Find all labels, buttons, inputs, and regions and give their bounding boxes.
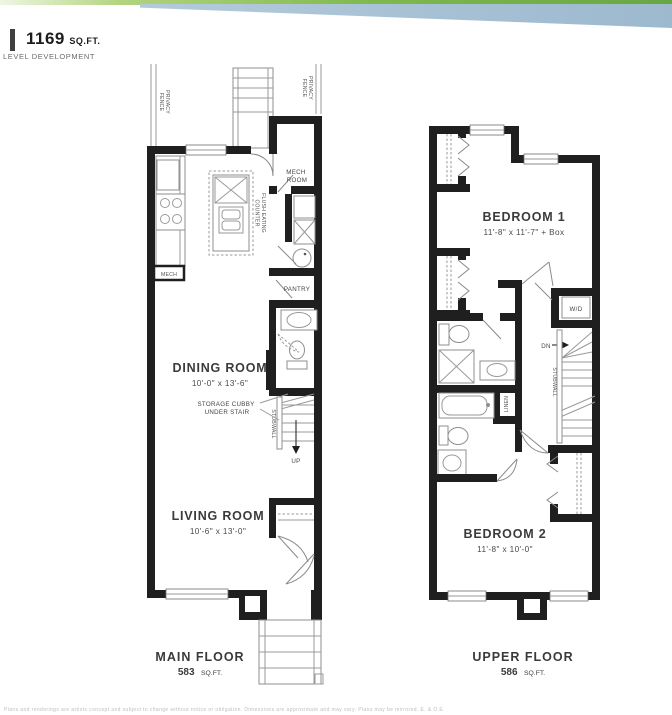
bathtub-icon bbox=[439, 393, 494, 418]
mech-box: MECH bbox=[154, 266, 184, 280]
kitchen-island bbox=[209, 171, 253, 255]
bedroom2-window-left bbox=[448, 591, 486, 601]
privacy-fence-right: PRIVACYFENCE bbox=[301, 64, 321, 114]
bedroom2-door bbox=[520, 430, 548, 453]
powder-sink-icon bbox=[278, 246, 311, 267]
upper-floor-title: UPPER FLOOR bbox=[472, 650, 573, 664]
stairs-down: DN STUBWALL bbox=[541, 330, 600, 453]
ensuite-toilet-icon bbox=[439, 324, 469, 345]
upper-porch-post bbox=[517, 592, 547, 620]
living-room-window bbox=[166, 589, 228, 599]
bedroom1-dims: 11'-8" x 11'-7" + Box bbox=[484, 228, 565, 237]
bedroom1-label: BEDROOM 1 bbox=[483, 210, 566, 224]
upper-floor-area: 586 SQ.FT. bbox=[501, 662, 545, 679]
bath-vanity bbox=[438, 450, 466, 476]
washer-dryer-closet: W/D bbox=[535, 283, 598, 328]
shower-icon bbox=[439, 350, 474, 383]
back-deck-stairs bbox=[233, 68, 273, 148]
bedroom1-window-right bbox=[524, 154, 558, 164]
upper-floor-plan: BEDROOM 1 11'-8" x 11'-7" + Box bbox=[429, 125, 600, 679]
bath-toilet-icon bbox=[439, 426, 468, 445]
bedroom2-label: BEDROOM 2 bbox=[464, 527, 547, 541]
fridge-cabinets bbox=[285, 194, 315, 244]
bedroom2-window-right bbox=[550, 591, 588, 601]
main-floor-plan: PRIVACYFENCE PRIVACYFENCE bbox=[147, 64, 323, 684]
stubwall-label-upper: STUBWALL bbox=[551, 367, 557, 396]
powder-room bbox=[266, 300, 317, 396]
front-steps bbox=[259, 620, 323, 684]
mech-box-label: MECH bbox=[161, 272, 177, 278]
disclaimer-text: Plans and renderings are artists concept… bbox=[4, 707, 668, 713]
bedroom1-window-left bbox=[470, 125, 504, 135]
living-room-label: LIVING ROOM bbox=[172, 509, 265, 523]
up-label: UP bbox=[291, 458, 300, 465]
up-arrow-icon bbox=[292, 420, 300, 454]
mech-room-label: MECH ROOM bbox=[286, 169, 307, 184]
back-door bbox=[251, 154, 273, 176]
dining-room-dims: 10'-0" x 13'-6" bbox=[192, 379, 248, 388]
privacy-fence-left-label: PRIVACYFENCE bbox=[158, 90, 170, 114]
svg-text:STORAGE CUBBY UNDER: STORAGE CUBBY UNDER STAIR bbox=[198, 401, 257, 416]
floorplan-drawing: PRIVACYFENCE PRIVACYFENCE bbox=[0, 0, 672, 715]
floorplan-page: 1169 SQ.FT. LEVEL DEVELOPMENT PRIVACYFEN… bbox=[0, 0, 672, 715]
toilet-icon bbox=[287, 341, 307, 369]
ensuite-bathroom bbox=[437, 313, 522, 393]
front-door bbox=[286, 554, 314, 584]
stubwall-label-main: STUBWALL bbox=[270, 409, 276, 438]
privacy-fence-right-label: PRIVACYFENCE bbox=[301, 76, 313, 100]
flush-eating-counter-label: FLUSH EATINGCOUNTER bbox=[254, 193, 267, 233]
kitchen-window bbox=[186, 145, 226, 155]
main-floor-area: 583 SQ.FT. bbox=[178, 662, 222, 679]
pantry-label: PANTRY bbox=[284, 286, 310, 293]
porch-post bbox=[239, 590, 267, 620]
cooktop-icon bbox=[156, 194, 185, 230]
wd-label: W/D bbox=[570, 306, 583, 313]
dn-label: DN bbox=[541, 343, 551, 350]
privacy-fence-left: PRIVACYFENCE bbox=[151, 64, 170, 148]
bedroom2-dims: 11'-8" x 10'-0" bbox=[477, 545, 533, 554]
linen-label: LINEN bbox=[504, 396, 510, 412]
main-floor-title: MAIN FLOOR bbox=[155, 650, 244, 664]
dining-room-label: DINING ROOM bbox=[173, 361, 268, 375]
living-room-dims: 10'-6" x 13'-0" bbox=[190, 527, 246, 536]
ensuite-vanity bbox=[480, 361, 515, 380]
